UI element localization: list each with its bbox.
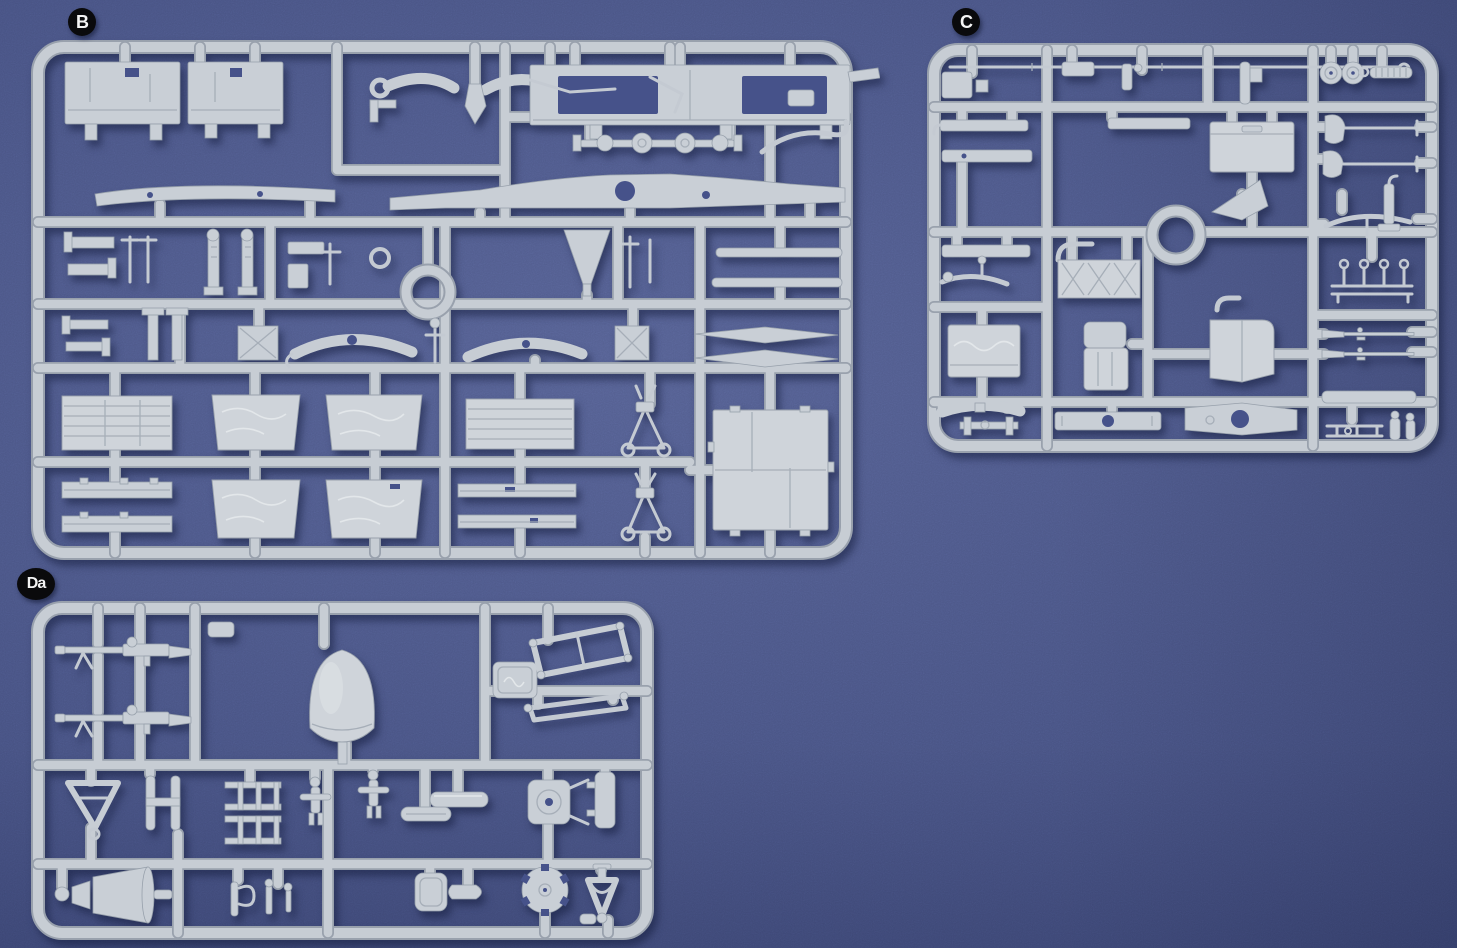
shovel [1325,115,1417,144]
cylinder-part [430,792,488,807]
torsion-bars [695,327,838,367]
stowage-box [1210,122,1294,172]
hub-assembly [528,780,588,824]
chassis-rail [95,186,335,206]
beam-with-hole [1055,412,1161,430]
ladder-frame [225,782,281,810]
x-braced-plate [238,326,278,360]
bracket-pair [64,232,156,282]
spring-part [1360,67,1412,78]
hood-wedge [1212,180,1268,220]
rifle [1322,348,1414,361]
canvas-panel [326,480,422,538]
flat-bar [1108,118,1190,129]
bracket-pair [62,316,110,356]
x-braced-box [1058,260,1140,298]
side-rail-strips [62,478,172,532]
lever-figure [358,770,389,818]
block-part [942,72,988,98]
notched-wheel [520,864,569,916]
cab-panel [188,62,283,138]
steering-linkage [942,256,1007,284]
mold-pad [788,90,814,106]
ladder-frame [225,816,281,844]
photo-canvas: B C Da [0,0,1457,948]
sprue-da-label-badge: Da [17,568,55,600]
roof-plate [708,406,834,536]
canvas-panel [212,395,300,450]
leaf-spring [468,340,582,357]
wheel-disc [1320,62,1342,84]
chassis-rail [390,174,845,210]
small-cylinders [1390,411,1415,440]
pillars [142,308,188,360]
machine-gun [55,705,191,736]
long-bar [1322,391,1416,403]
wavy-panel [948,325,1020,377]
hook-rack [1332,260,1412,302]
seat [1084,322,1128,390]
tow-triangle [68,783,118,839]
canvas-panel [212,480,300,538]
jack [1378,176,1400,231]
sprue-b-label-badge: B [68,8,96,36]
x-braced-plate [615,326,649,360]
flat-bar [942,150,1032,162]
funnel-part [564,230,610,296]
rounded-plate [415,873,447,911]
shock-struts [204,229,257,295]
rifle [1322,328,1414,341]
side-plate [587,772,615,828]
seat-cushion [401,807,451,821]
flat-bar [942,245,1030,257]
sprue-c [912,34,1445,458]
dome-seat-shell [310,650,375,764]
side-rail-strips [458,484,576,528]
beam-with-hole [1185,403,1297,435]
sprue-da [28,596,655,948]
sprue-c-label-badge: C [952,8,980,36]
bullet-part [449,885,482,899]
leaf-spring [942,403,1020,412]
horn-cones [55,867,172,923]
machine-gun [55,637,191,668]
small-brackets [288,242,389,288]
long-bar [716,248,842,257]
bed-floor-panel [466,399,574,449]
clamp-bits [623,237,650,287]
axle-frame [960,417,1018,435]
cab-panel [65,62,180,140]
cab-corner-panel [1210,298,1274,382]
shovel [1323,151,1417,178]
pin-with-flag [1240,62,1262,104]
ring-part [1152,211,1200,259]
sprue-b [30,32,880,568]
bed-floor-panel [62,396,172,450]
canvas-panel [326,395,422,450]
flat-bar [934,120,1028,134]
long-bar [712,278,842,287]
mold-pad [208,622,234,637]
logo-tag [493,662,537,698]
small-rack [1327,426,1382,436]
h-frame [146,776,180,830]
